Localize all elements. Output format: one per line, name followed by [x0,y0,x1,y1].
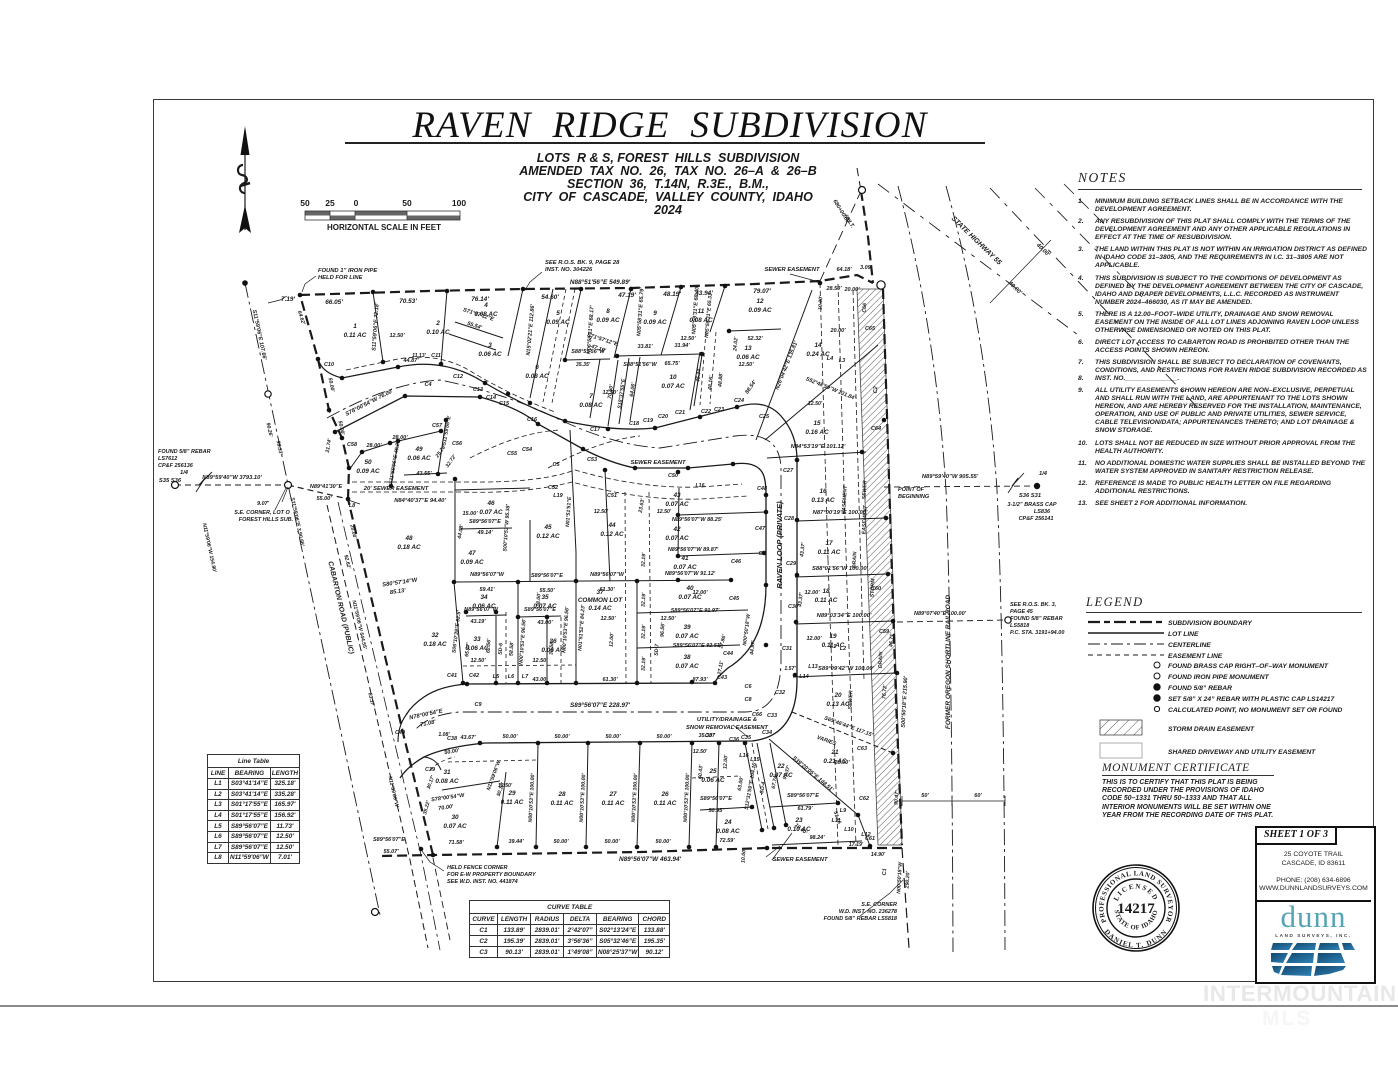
svg-text:39: 39 [683,624,691,631]
svg-text:43.00': 43.00' [536,620,553,626]
svg-text:C50: C50 [668,473,678,479]
svg-text:12.50': 12.50' [657,509,672,515]
svg-text:26: 26 [660,791,669,798]
svg-text:FOUND 5/8” REBAR: FOUND 5/8” REBAR [1010,616,1063,622]
svg-text:62.56': 62.56' [486,638,493,653]
svg-text:11.13': 11.13' [412,353,427,359]
svg-text:0: 0 [354,198,359,208]
svg-text:L16: L16 [739,753,749,759]
svg-text:45: 45 [543,524,552,531]
svg-text:20' SEWER EASEMENT: 20' SEWER EASEMENT [363,486,429,492]
svg-text:C17: C17 [590,427,601,433]
svg-text:23.63': 23.63' [638,498,647,515]
svg-text:0.08 AC: 0.08 AC [716,828,740,835]
svg-text:SNOW REMOVAL EASEMENT: SNOW REMOVAL EASEMENT [686,725,768,731]
svg-text:35.35': 35.35' [576,362,591,368]
svg-text:67.74': 67.74' [771,774,780,790]
svg-text:48.19': 48.19' [662,291,681,298]
svg-text:C55: C55 [507,451,518,457]
svg-text:STATE HIGHWAY 55: STATE HIGHWAY 55 [950,215,1003,266]
svg-text:28: 28 [557,791,566,798]
svg-text:98.24': 98.24' [809,835,825,841]
svg-text:12.00': 12.00' [692,590,708,596]
svg-text:17.86': 17.86' [718,633,728,649]
svg-text:0.07 AC: 0.07 AC [675,663,699,670]
svg-text:0.13 AC: 0.13 AC [826,701,850,708]
svg-text:C62: C62 [859,796,869,802]
svg-text:24.02': 24.02' [732,336,739,352]
svg-text:0.09 AC: 0.09 AC [356,468,380,475]
svg-text:S89°56'07”E 228.97': S89°56'07”E 228.97' [570,701,630,709]
svg-text:N01°51'51”E: N01°51'51”E [565,496,573,527]
svg-text:C51: C51 [607,493,617,499]
svg-text:47: 47 [467,550,476,557]
svg-text:S80°57'14”W: S80°57'14”W [382,578,418,589]
svg-text:L6: L6 [508,674,515,680]
svg-text:58.58': 58.58' [509,641,516,656]
svg-text:L4: L4 [827,356,833,362]
svg-text:12.50': 12.50' [594,509,609,515]
svg-text:50.00': 50.00' [502,734,518,740]
svg-text:30: 30 [451,814,459,821]
svg-text:43.55': 43.55' [415,471,432,477]
svg-text:N89°59'40”W 3793.10': N89°59'40”W 3793.10' [202,475,262,481]
svg-text:STORM: STORM [870,578,877,598]
svg-text:79.07': 79.07' [753,288,771,295]
svg-text:C11: C11 [431,353,441,359]
svg-text:12.50': 12.50' [532,658,548,664]
svg-text:38: 38 [683,654,691,661]
svg-text:0.18 AC: 0.18 AC [397,544,421,551]
svg-text:34: 34 [480,594,488,601]
svg-text:87.93': 87.93' [692,677,708,683]
svg-text:12.50': 12.50' [600,616,616,622]
svg-text:290.20': 290.20' [905,870,912,889]
svg-text:INST. NO. 304226: INST. NO. 304226 [545,267,593,273]
svg-text:C47: C47 [755,526,766,532]
svg-text:31.94': 31.94' [674,343,690,349]
svg-text:S36 S31: S36 S31 [1019,493,1041,499]
svg-text:50: 50 [364,459,372,466]
svg-text:FOUND IRON PIPE MONUMENT: FOUND IRON PIPE MONUMENT [1168,674,1270,681]
svg-text:0.09 AC: 0.09 AC [546,319,570,326]
svg-text:32.19': 32.19' [641,624,648,639]
svg-text:0.08 AC: 0.08 AC [525,373,549,380]
svg-text:4: 4 [483,302,488,309]
svg-text:C40: C40 [395,730,405,736]
svg-text:43.19': 43.19' [469,619,486,625]
svg-text:S71°57'12”E: S71°57'12”E [462,307,495,323]
svg-text:FOUND BRASS CAP RIGHT–OF–WAY M: FOUND BRASS CAP RIGHT–OF–WAY MONUMENT [1168,663,1329,670]
svg-text:0.07 AC: 0.07 AC [661,383,685,390]
svg-text:0.16 AC: 0.16 AC [805,429,829,436]
svg-text:64.62': 64.62' [296,310,306,326]
svg-text:32: 32 [431,632,439,639]
svg-text:S88°01'56”W 100.00': S88°01'56”W 100.00' [812,566,869,572]
svg-text:27: 27 [608,791,617,798]
svg-text:HELD FOR LINE: HELD FOR LINE [318,275,364,281]
svg-text:44.97': 44.97' [749,640,757,657]
svg-text:100: 100 [452,198,466,208]
svg-text:35.30': 35.30' [698,733,714,739]
svg-text:90.26': 90.26' [265,422,274,438]
svg-text:44: 44 [607,522,616,529]
svg-text:C29: C29 [786,561,797,567]
svg-text:42: 42 [672,526,681,533]
svg-text:N89°59'40”W 905.55': N89°59'40”W 905.55' [922,474,979,480]
svg-text:0.18 AC: 0.18 AC [423,641,447,648]
svg-text:61.30': 61.30' [602,677,618,683]
svg-text:L14: L14 [799,674,808,680]
svg-text:C46: C46 [731,559,742,565]
svg-text:N89°56'07”W: N89°56'07”W [464,607,499,613]
svg-text:N00°10'53”E 100.00': N00°10'53”E 100.00' [528,773,537,823]
svg-text:47.19': 47.19' [617,292,636,299]
svg-text:S06°10'39”E 92.5': S06°10'39”E 92.5' [451,609,462,653]
svg-text:70.60': 70.60' [607,384,615,400]
svg-text:SEE R.O.S. BK. 9, PAGE 28: SEE R.O.S. BK. 9, PAGE 28 [545,260,620,266]
svg-text:C52: C52 [548,485,558,491]
svg-text:0.10 AC: 0.10 AC [426,329,450,336]
svg-text:27.11': 27.11' [717,660,726,676]
svg-text:63.00': 63.00' [737,776,746,792]
svg-text:C42: C42 [469,673,479,679]
svg-text:C27: C27 [783,468,794,474]
svg-text:S88°51'56”W: S88°51'56”W [623,362,657,368]
svg-text:5: 5 [556,310,560,317]
svg-text:N11°59'06”W 154.90': N11°59'06”W 154.90' [201,523,217,574]
svg-text:12.50': 12.50' [660,616,676,622]
svg-text:44.08': 44.08' [457,524,466,541]
svg-text:33.81': 33.81' [637,344,653,350]
svg-text:LOT LINE: LOT LINE [1168,631,1199,638]
svg-text:12.00': 12.00' [804,590,820,596]
svg-text:0.12 AC: 0.12 AC [600,531,624,538]
svg-text:DRAIN: DRAIN [852,551,859,568]
svg-text:C63: C63 [857,746,867,752]
svg-text:FOUND 5/8” REBAR: FOUND 5/8” REBAR [1168,685,1232,692]
svg-text:12.50': 12.50' [693,749,708,755]
svg-text:SD-7: SD-7 [654,643,661,656]
svg-text:48: 48 [404,535,413,542]
svg-text:38.58': 38.58' [549,640,556,655]
svg-text:C12: C12 [453,374,463,380]
svg-text:C19: C19 [643,418,654,424]
svg-text:S89°56'07”E: S89°56'07”E [531,573,563,579]
svg-text:S52°48'59”W 131.84': S52°48'59”W 131.84' [805,376,857,402]
svg-text:N78°00'54”E: N78°00'54”E [409,708,445,721]
svg-text:N05°58'31”E 65.33': N05°58'31”E 65.33' [704,291,714,338]
svg-text:20.00': 20.00' [843,287,860,293]
svg-text:LICENSED: LICENSED [1112,882,1160,902]
svg-text:C16: C16 [527,417,538,423]
svg-text:S65°46'44”E 117.15': S65°46'44”E 117.15' [823,715,874,738]
svg-text:C48: C48 [757,486,768,492]
svg-text:C44: C44 [723,651,733,657]
svg-text:60': 60' [974,793,982,799]
svg-text:CENTERLINE: CENTERLINE [1168,642,1211,649]
svg-text:0.13 AC: 0.13 AC [811,497,835,504]
svg-text:92.62': 92.62' [342,554,351,570]
svg-text:29: 29 [507,790,516,797]
svg-text:0.09 AC: 0.09 AC [596,317,620,324]
svg-text:C23: C23 [714,407,724,413]
svg-text:99.33': 99.33' [275,440,284,456]
svg-text:66.05': 66.05' [325,299,343,306]
svg-text:12: 12 [756,298,764,305]
svg-text:0.07 AC: 0.07 AC [479,509,503,516]
svg-text:C54: C54 [522,447,532,453]
svg-text:C15: C15 [499,401,510,407]
svg-text:1: 1 [353,323,357,330]
svg-text:LS7612: LS7612 [158,456,177,462]
svg-text:S18°37'55”E: S18°37'55”E [617,378,627,409]
svg-text:C59: C59 [879,629,890,635]
svg-text:10.00': 10.00' [818,295,825,310]
svg-text:S89°56'07”E: S89°56'07”E [469,519,501,525]
svg-text:N00°10'53”E 96.56': N00°10'53”E 96.56' [518,618,527,665]
svg-text:S89°56'07”E: S89°56'07”E [700,796,732,802]
svg-text:N26°04'42”E 135.81': N26°04'42”E 135.81' [775,340,800,391]
svg-text:0.11 AC: 0.11 AC [501,799,524,806]
svg-text:SEE W.D. INST. NO. 441874: SEE W.D. INST. NO. 441874 [447,879,518,885]
svg-text:50.95': 50.95' [708,808,724,814]
svg-text:70.00': 70.00' [438,804,454,812]
svg-text:C25: C25 [759,414,770,420]
svg-text:12.00': 12.00' [723,754,730,769]
svg-text:N11°59'06”W: N11°59'06”W [387,776,400,809]
svg-text:41: 41 [680,555,689,562]
svg-text:0.06 AC: 0.06 AC [478,351,502,358]
svg-text:28.00': 28.00' [365,443,382,449]
svg-text:C28: C28 [784,516,795,522]
svg-text:UTILITY/DRAINAGE &: UTILITY/DRAINAGE & [697,717,757,723]
svg-text:C4: C4 [424,382,431,388]
svg-text:FOUND 5/8” REBAR: FOUND 5/8” REBAR [158,449,211,455]
svg-text:25: 25 [708,768,717,775]
svg-text:46: 46 [486,500,495,507]
svg-text:50.00': 50.00' [554,734,570,740]
svg-text:C9: C9 [474,702,482,708]
svg-text:C36: C36 [729,737,740,743]
svg-text:55.07': 55.07' [383,849,399,855]
svg-text:8: 8 [606,308,610,315]
svg-text:0.06 AC: 0.06 AC [736,354,760,361]
svg-text:L1: L1 [830,644,836,650]
svg-text:N89°03'34”E 100.00': N89°03'34”E 100.00' [817,613,872,619]
svg-text:3-1/2” BRASS CAP: 3-1/2” BRASS CAP [1007,502,1057,508]
svg-text:C31: C31 [782,646,792,652]
svg-text:12.50': 12.50' [808,401,823,407]
svg-text:N89°41'30”E: N89°41'30”E [310,484,343,490]
svg-text:24: 24 [723,819,732,826]
svg-text:35.22': 35.22' [422,799,432,815]
svg-text:10: 10 [669,374,677,381]
svg-text:L12: L12 [861,832,870,838]
svg-text:31.74': 31.74' [325,438,334,454]
svg-text:C7: C7 [758,551,766,557]
svg-text:LS836: LS836 [1034,509,1051,515]
svg-text:13: 13 [744,345,752,352]
svg-text:65.17': 65.17' [464,642,472,658]
svg-text:0.11 AC: 0.11 AC [551,800,574,807]
svg-text:DRAIN: DRAIN [878,651,885,668]
svg-text:0.12 AC: 0.12 AC [536,533,560,540]
svg-text:HELD FENCE CORNER: HELD FENCE CORNER [447,865,508,871]
svg-text:S89°56'07”E 92.51': S89°56'07”E 92.51' [673,643,722,649]
svg-text:N00°50'18”W: N00°50'18”W [896,861,904,894]
svg-text:32.19': 32.19' [641,592,648,607]
svg-text:SEWER EASEMENT: SEWER EASEMENT [764,267,820,273]
svg-text:50.00': 50.00' [553,839,569,845]
svg-text:76.14': 76.14' [471,296,489,303]
svg-text:0.11 AC: 0.11 AC [654,800,677,807]
svg-text:12.00': 12.00' [609,632,616,647]
svg-text:12.50': 12.50' [389,333,405,339]
svg-text:32.19': 32.19' [641,656,648,671]
svg-text:C41: C41 [447,673,457,679]
svg-text:48.16': 48.16' [707,375,714,391]
svg-text:96.56': 96.56' [660,622,667,637]
svg-text:50.00': 50.00' [604,839,620,845]
svg-text:54.60': 54.60' [541,294,559,301]
svg-text:20.00': 20.00' [833,760,850,766]
svg-text:COMMON LOT: COMMON LOT [578,597,623,604]
svg-text:70.53': 70.53' [399,298,417,305]
svg-text:C32: C32 [775,690,785,696]
svg-text:50': 50' [921,793,929,799]
svg-text:0.08 AC: 0.08 AC [579,402,603,409]
svg-text:1/4: 1/4 [1039,471,1048,477]
svg-text:17.19': 17.19' [849,842,864,848]
svg-text:L7: L7 [522,674,529,680]
svg-text:L8: L8 [349,503,356,509]
svg-text:CP&F 256141: CP&F 256141 [1019,516,1054,522]
svg-text:49.14': 49.14' [476,530,493,536]
svg-text:CALCULATED POINT, NO MONUMENT: CALCULATED POINT, NO MONUMENT SET OR FOU… [1168,707,1343,714]
svg-text:C13: C13 [473,387,483,393]
svg-text:N89°56'07”W 88.25': N89°56'07”W 88.25' [672,517,723,523]
svg-text:2: 2 [435,320,440,327]
svg-text:52.32': 52.32' [747,336,763,342]
svg-text:C6: C6 [744,684,752,690]
svg-text:21: 21 [830,749,839,756]
svg-text:50.00': 50.00' [327,377,336,393]
svg-text:6: 6 [535,364,539,371]
svg-text:RAVEN LOOP (PRIVATE): RAVEN LOOP (PRIVATE) [775,501,784,589]
svg-text:SUBDIVISION BOUNDARY: SUBDIVISION BOUNDARY [1168,620,1252,627]
svg-text:65.75': 65.75' [664,361,680,367]
svg-text:1/4: 1/4 [180,470,189,476]
svg-text:55.00': 55.00' [316,496,332,502]
svg-text:C66: C66 [862,303,869,313]
svg-text:C33: C33 [767,713,777,719]
svg-text:EASEMENT LINE: EASEMENT LINE [1168,653,1223,660]
svg-text:88.54': 88.54' [744,379,758,395]
svg-text:FOR E-W PROPERTY BOUNDARY: FOR E-W PROPERTY BOUNDARY [447,872,537,878]
svg-text:N89°56'07”W 91.12': N89°56'07”W 91.12' [665,571,716,577]
svg-text:SEWER EASEMENT: SEWER EASEMENT [772,857,828,863]
svg-text:0.06 AC: 0.06 AC [701,777,725,784]
svg-text:S12°31'59”E 104.16': S12°31'59”E 104.16' [744,761,758,811]
svg-text:C65: C65 [865,326,876,332]
svg-text:C14: C14 [486,395,496,401]
svg-text:0.08 AC: 0.08 AC [435,778,459,785]
svg-text:61.79': 61.79' [797,806,813,812]
svg-text:S78°00'54”W: S78°00'54”W [431,793,466,804]
svg-text:20.00': 20.00' [829,328,846,334]
svg-text:POINT OF: POINT OF [898,487,925,493]
svg-text:N05°58'31”E 65.79': N05°58'31”E 65.79' [636,287,645,337]
svg-text:C1: C1 [882,868,889,876]
svg-text:28.50': 28.50' [825,286,842,292]
svg-text:C18: C18 [629,421,640,427]
svg-text:55.54': 55.54' [466,321,483,332]
svg-text:C5: C5 [552,462,560,468]
svg-text:C45: C45 [729,596,740,602]
svg-text:0.07 AC: 0.07 AC [673,564,697,571]
svg-text:50.00': 50.00' [605,734,621,740]
svg-text:PAGE 45: PAGE 45 [1010,609,1034,615]
svg-text:HORIZONTAL SCALE IN FEET: HORIZONTAL SCALE IN FEET [327,223,441,232]
svg-text:12.50': 12.50' [680,336,696,342]
svg-text:45.34': 45.34' [695,367,702,383]
svg-text:20: 20 [833,692,842,699]
svg-text:7: 7 [589,393,593,400]
svg-text:N89°56'07”W 89.87': N89°56'07”W 89.87' [668,547,719,553]
svg-text:12.50': 12.50' [738,362,754,368]
svg-text:P.C. STA. 3191+94.00: P.C. STA. 3191+94.00 [1010,630,1064,636]
svg-text:C20: C20 [658,414,668,420]
svg-text:L19: L19 [553,493,563,499]
svg-text:0.09 AC: 0.09 AC [643,319,667,326]
svg-text:C64: C64 [871,426,881,432]
svg-text:64.06': 64.06' [629,382,637,398]
svg-text:SEWER: SEWER [848,690,855,710]
svg-text:43.00': 43.00' [531,677,548,683]
svg-text:L9: L9 [840,808,847,814]
svg-text:18: 18 [822,588,830,595]
svg-text:10.00': 10.00' [741,848,748,863]
svg-text:N00°10'53”E 100.00': N00°10'53”E 100.00' [579,773,588,823]
svg-text:C56: C56 [452,441,463,447]
svg-text:S11°59'06”E 107.66': S11°59'06”E 107.66' [251,309,268,361]
svg-text:40.00': 40.00' [1006,280,1023,296]
svg-text:19: 19 [829,633,837,640]
svg-text:15: 15 [813,420,821,427]
svg-text:SD-4: SD-4 [759,781,767,794]
svg-text:S35 S36: S35 S36 [159,478,182,484]
svg-text:LS5818: LS5818 [1010,623,1030,629]
svg-text:SEWER EASEMENT: SEWER EASEMENT [630,460,686,466]
svg-text:61.30': 61.30' [599,587,615,593]
svg-text:50.00': 50.00' [656,734,672,740]
svg-text:64.18': 64.18' [836,267,852,273]
svg-text:12.50': 12.50' [470,658,486,664]
svg-text:CABARTON ROAD (PUBLIC): CABARTON ROAD (PUBLIC) [326,561,354,656]
svg-text:N84°40'37”E 94.40': N84°40'37”E 94.40' [394,498,446,504]
svg-text:N84°53'19”E 101.12': N84°53'19”E 101.12' [791,444,846,450]
svg-text:N89°56'07”W: N89°56'07”W [470,572,505,578]
svg-text:14217: 14217 [1117,901,1155,917]
svg-text:16: 16 [819,488,827,495]
svg-text:S89°56'07”E 91.97': S89°56'07”E 91.97' [671,608,720,614]
svg-text:FOREST HILLS SUB.: FOREST HILLS SUB. [239,517,294,523]
svg-text:C2: C2 [873,386,880,394]
svg-text:0.06 AC: 0.06 AC [407,455,431,462]
svg-text:L5: L5 [493,674,500,680]
svg-text:N89°56'07”W: N89°56'07”W [590,572,625,578]
